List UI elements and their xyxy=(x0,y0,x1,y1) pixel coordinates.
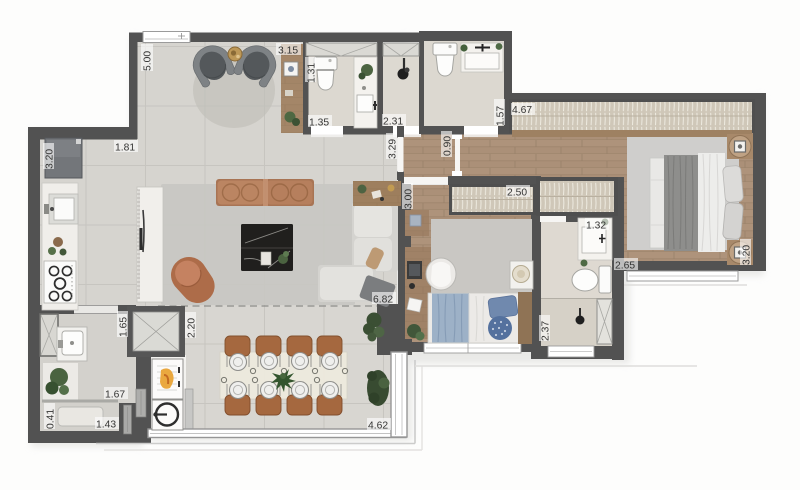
svg-text:1.35: 1.35 xyxy=(309,118,329,129)
svg-text:3.29: 3.29 xyxy=(388,139,399,159)
svg-text:3.00: 3.00 xyxy=(404,189,415,209)
svg-text:1.57: 1.57 xyxy=(496,106,507,126)
svg-text:1.32: 1.32 xyxy=(586,221,606,232)
svg-text:1.43: 1.43 xyxy=(96,420,116,431)
svg-text:1.31: 1.31 xyxy=(307,63,318,83)
svg-text:6.82: 6.82 xyxy=(373,295,393,306)
svg-text:2.20: 2.20 xyxy=(187,318,198,338)
svg-text:0.90: 0.90 xyxy=(443,136,454,156)
svg-text:3.20: 3.20 xyxy=(45,149,56,169)
svg-text:2.37: 2.37 xyxy=(541,321,552,341)
svg-text:1.67: 1.67 xyxy=(105,390,125,401)
svg-text:1.81: 1.81 xyxy=(115,143,135,154)
svg-text:3.15: 3.15 xyxy=(278,46,298,57)
svg-text:0.41: 0.41 xyxy=(46,409,57,429)
svg-text:4.62: 4.62 xyxy=(368,421,388,432)
svg-text:4.67: 4.67 xyxy=(512,105,532,116)
svg-text:2.65: 2.65 xyxy=(615,261,635,272)
svg-text:3.20: 3.20 xyxy=(742,245,753,265)
svg-text:5.00: 5.00 xyxy=(143,51,154,71)
svg-text:2.50: 2.50 xyxy=(507,188,527,199)
svg-text:1.65: 1.65 xyxy=(119,317,130,337)
svg-text:2.31: 2.31 xyxy=(383,117,403,128)
